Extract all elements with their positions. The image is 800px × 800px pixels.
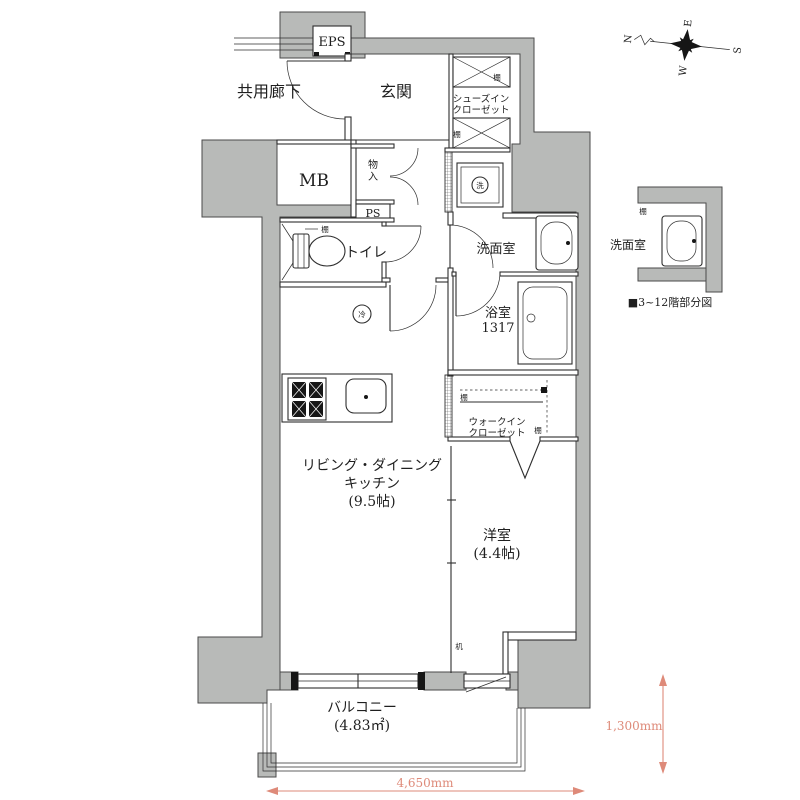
label-shelf-shoes-bottom: 棚 <box>453 129 461 139</box>
label-eps: EPS <box>318 35 345 50</box>
label-desk: 机 <box>455 641 463 651</box>
toilet-door-arc <box>385 226 421 262</box>
label-fridge: 冷 <box>358 309 366 319</box>
label-wic-2: クローゼット <box>468 427 525 439</box>
label-shelf-shoes-top: 棚 <box>493 72 501 82</box>
label-western-room-size: (4.4帖) <box>473 546 520 562</box>
bath-wic-divider <box>448 370 578 375</box>
toilet-fixture <box>282 224 345 280</box>
label-ldk-2: キッチン <box>344 476 400 492</box>
storage-bottom-wall <box>356 200 394 204</box>
label-shoes-closet-2: クローゼット <box>452 104 509 116</box>
mb-top-wall <box>277 140 351 144</box>
bath-washroom-divider <box>500 272 578 276</box>
compass-w: W <box>678 65 690 77</box>
partial-sink <box>662 216 702 266</box>
label-bathroom-size: 1317 <box>481 321 514 336</box>
wic-hatch-wall <box>445 375 452 437</box>
dimension-height-label: 1,300mm <box>605 719 663 733</box>
label-shelf-partial: 棚 <box>639 206 647 216</box>
compass-e: E <box>683 19 695 27</box>
storage-door-arc-top <box>390 148 418 176</box>
label-balcony-size: (4.83㎡) <box>334 718 390 734</box>
floorplan-page: N S E W 1,300mm 4,650mm EPS 共用廊下 玄関 シューズ… <box>0 0 800 800</box>
label-storage-1: 物 <box>368 158 378 171</box>
outer-walls <box>198 12 590 777</box>
label-shelf-toilet: 棚 <box>321 224 329 234</box>
ldk-door-arc <box>390 285 436 331</box>
label-bathroom: 浴室 <box>485 305 511 321</box>
dimension-width: 4,650mm <box>266 776 585 795</box>
washer-nook-hatch-wall <box>445 152 452 212</box>
windows <box>291 672 510 692</box>
label-corridor: 共用廊下 <box>237 82 301 101</box>
kitchen-counter <box>282 374 392 422</box>
toilet-south-wall <box>280 282 386 287</box>
western-se-wall <box>506 632 576 640</box>
compass-s: S <box>732 46 744 54</box>
label-balcony: バルコニー <box>327 700 397 716</box>
stove <box>288 378 326 420</box>
partial-plan <box>638 187 722 292</box>
label-shelf-wic-left: 棚 <box>460 392 468 402</box>
dimension-height: 1,300mm <box>605 674 667 774</box>
shoes-bottom-wall <box>445 148 510 152</box>
dimension-width-label: 4,650mm <box>396 776 454 790</box>
bathtub <box>518 282 572 364</box>
label-shelf-wic-right: 棚 <box>534 425 542 435</box>
wic-folding-door <box>510 441 540 478</box>
label-toilet: トイレ <box>345 245 387 261</box>
label-ldk-size: (9.5帖) <box>348 494 395 510</box>
label-partial-caption: ■3~12階部分図 <box>628 295 713 309</box>
label-shoes-closet-1: シューズイン <box>453 93 510 105</box>
mb-east-wall <box>351 140 356 217</box>
compass-n: N <box>623 34 635 44</box>
storage-top-wall <box>351 144 394 148</box>
label-washer: 洗 <box>476 180 484 190</box>
label-mb: MB <box>299 171 329 191</box>
label-wic-1: ウォークイン <box>468 417 525 428</box>
compass: N S E W <box>620 13 746 82</box>
label-ldk-1: リビング・ダイニング <box>302 458 442 474</box>
window-stub-center <box>424 672 466 690</box>
label-partial-washroom: 洗面室 <box>610 237 646 252</box>
label-ps: PS <box>366 207 381 220</box>
floorplan-svg: N S E W 1,300mm 4,650mm EPS 共用廊下 玄関 シューズ… <box>0 0 800 800</box>
washroom-sink <box>536 216 578 270</box>
label-western-room: 洋室 <box>483 527 511 544</box>
bath-west-wall <box>448 268 453 376</box>
label-washroom: 洗面室 <box>476 241 515 257</box>
label-storage-2: 入 <box>368 172 378 183</box>
label-entrance: 玄関 <box>380 82 412 101</box>
